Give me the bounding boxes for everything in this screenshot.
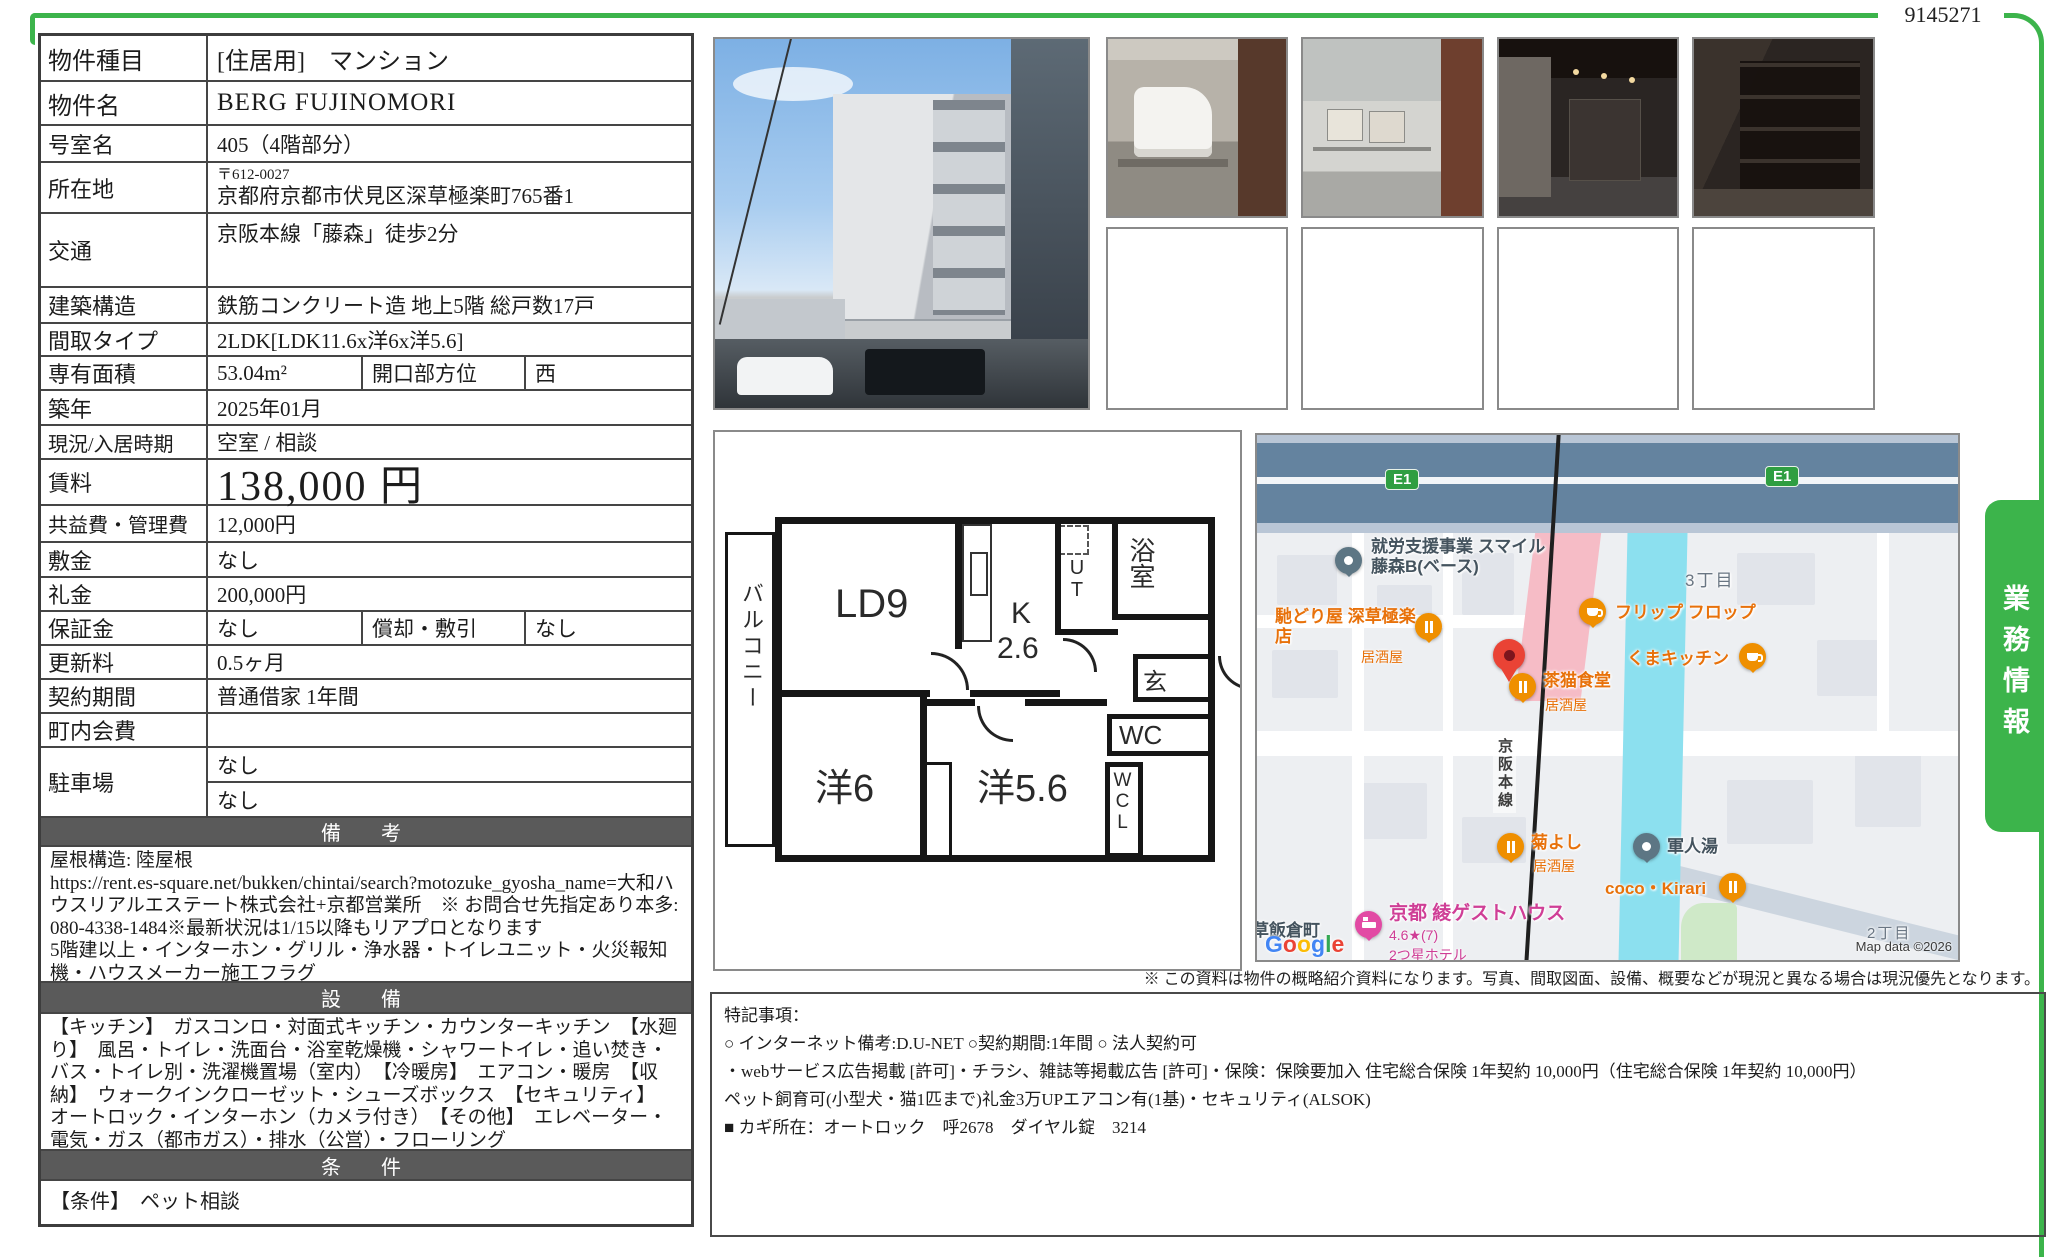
table-row-neighborhood: 町内会費 xyxy=(41,714,691,748)
flipflop-label[interactable]: フリップ フロップ xyxy=(1615,603,1756,623)
kitchen-size-label: 2.6 xyxy=(997,632,1039,666)
field-value: 鉄筋コンクリート造 地上5階 総戸数17戸 xyxy=(208,288,691,322)
table-row-keymoney: 礼金 200,000円 xyxy=(41,578,691,612)
map-building xyxy=(1817,640,1885,696)
field-value: 12,000円 xyxy=(208,506,691,541)
floor-edge xyxy=(1118,159,1228,167)
property-marker[interactable] xyxy=(1493,639,1525,671)
restaurant-icon xyxy=(1729,881,1732,893)
highway-edge xyxy=(1257,435,1960,443)
support-office-pin[interactable] xyxy=(1335,547,1362,574)
wall xyxy=(970,690,1060,697)
table-row-renewal: 更新料 0.5ヶ月 xyxy=(41,646,691,680)
parking-value-2: なし xyxy=(208,783,691,816)
railway-label: 京阪本線 xyxy=(1493,735,1516,813)
photo-mailboxes xyxy=(1692,37,1875,218)
guesthouse-label[interactable]: 京都 綾ゲストハウス xyxy=(1389,903,1565,926)
closet xyxy=(962,524,992,642)
field-label: 建築構造 xyxy=(41,288,208,322)
disclaimer-note: ※ この資料は物件の概略紹介資料になります。写真、間取図面、設備、概要などが現況… xyxy=(700,965,2040,989)
chaneko-label[interactable]: 茶猫食堂 xyxy=(1543,671,1611,691)
frame-corner xyxy=(2004,13,2044,65)
field-label: 所在地 xyxy=(41,163,208,212)
field-label-direction: 開口部方位 xyxy=(363,357,526,389)
table-row-deposit: 敷金 なし xyxy=(41,543,691,578)
route-shield-e1: E1 xyxy=(1765,466,1799,487)
ac-unit xyxy=(1369,111,1405,143)
field-label: 物件名 xyxy=(41,82,208,124)
closet-between-rooms xyxy=(920,762,952,858)
field-value: なし xyxy=(208,543,691,576)
kuma-kitchen-label[interactable]: くまキッチン xyxy=(1627,649,1729,669)
living-label: LD9 xyxy=(835,582,908,627)
building-dark-side xyxy=(1011,39,1090,339)
field-label: 物件種目 xyxy=(41,36,208,80)
field-label: 共益費・管理費 xyxy=(41,506,208,541)
bedroom1-label: 洋6 xyxy=(815,757,874,812)
field-value: 普通借家 1年間 xyxy=(208,680,691,712)
field-value: 2025年01月 xyxy=(208,391,691,424)
field-label: 専有面積 xyxy=(41,357,208,389)
table-row-contract: 契約期間 普通借家 1年間 xyxy=(41,680,691,714)
field-label: 更新料 xyxy=(41,646,208,678)
gunjinyu-pin[interactable] xyxy=(1633,833,1660,860)
location-map[interactable]: E1 E1 京阪本線 就労支援事業 スマイル 藤森B(ベース) 馳どり屋 深草極… xyxy=(1255,433,1960,962)
wall xyxy=(955,524,962,649)
wcl-label: WCL xyxy=(1111,770,1133,833)
restaurant-icon xyxy=(1507,841,1510,853)
parking-value-1: なし xyxy=(208,748,691,783)
kitchen-label: K xyxy=(1011,597,1031,631)
table-row-guarantee: 保証金 なし 償却・敷引 なし xyxy=(41,612,691,646)
conditions-text: 【条件】 ペット相談 xyxy=(41,1181,691,1224)
map-road xyxy=(1877,531,1889,743)
photo-placeholder-1 xyxy=(1106,227,1288,410)
field-label: 町内会費 xyxy=(41,714,208,746)
field-label: 敷金 xyxy=(41,543,208,576)
route-shield-e1: E1 xyxy=(1385,469,1419,490)
brick-wall xyxy=(1238,39,1288,218)
photo-placeholder-4 xyxy=(1692,227,1875,410)
business-info-tab[interactable]: 業務情報 xyxy=(1985,500,2044,832)
table-row-room: 号室名 405（4階部分） xyxy=(41,126,691,163)
photo-bicycle-parking xyxy=(1106,37,1288,218)
table-row-type: 物件種目 [住居用] マンション xyxy=(41,36,691,82)
guesthouse-type: 2つ星ホテル xyxy=(1389,945,1467,962)
property-sheet: 9145271 業務情報 物件種目 [住居用] マンション 物件名 BERG F… xyxy=(0,0,2056,1257)
building-exterior xyxy=(833,94,1011,319)
postal-code: 〒612-0027 xyxy=(217,167,290,184)
field-label: 契約期間 xyxy=(41,680,208,712)
field-value: 200,000円 xyxy=(208,578,691,610)
frame-left-stub xyxy=(30,13,35,45)
remarks-text: 屋根構造: 陸屋根 https://rent.es-square.net/buk… xyxy=(41,847,691,983)
wall xyxy=(1112,614,1215,620)
support-office-label[interactable]: 就労支援事業 スマイル 藤森B(ベース) xyxy=(1371,537,1611,578)
map-building xyxy=(1855,753,1921,827)
wc-label: WC xyxy=(1119,720,1162,751)
table-row-built: 築年 2025年01月 xyxy=(41,391,691,426)
guesthouse-pin[interactable] xyxy=(1355,911,1382,938)
field-value: 405（4階部分） xyxy=(208,126,691,161)
kikuyoshi-label[interactable]: 菊よし xyxy=(1531,833,1582,853)
field-label: 号室名 xyxy=(41,126,208,161)
field-value xyxy=(208,714,691,746)
parked-car xyxy=(737,357,833,395)
utility-label: UT xyxy=(1065,557,1088,601)
cafe-icon xyxy=(1747,653,1758,661)
field-value: 京阪本線「藤森」徒歩2分 xyxy=(208,214,691,286)
field-label: 築年 xyxy=(41,391,208,424)
hotel-icon xyxy=(1362,922,1376,928)
field-label-amortization: 償却・敷引 xyxy=(363,612,526,644)
table-row-address: 所在地 〒612-0027 京都府京都市伏見区深草極楽町765番1 xyxy=(41,163,691,214)
chaneko-type: 居酒屋 xyxy=(1545,695,1587,715)
table-row-rent: 賃料 138,000 円 xyxy=(41,460,691,506)
equipment-header: 設 備 xyxy=(41,983,691,1014)
field-label: 保証金 xyxy=(41,612,208,644)
hashidoriya-type: 居酒屋 xyxy=(1361,647,1403,667)
field-value: BERG FUJINOMORI xyxy=(208,82,691,124)
field-label: 駐車場 xyxy=(41,748,208,816)
map-greenery xyxy=(1681,903,1737,962)
coco-kirari-pin[interactable] xyxy=(1719,873,1746,900)
ceiling-lights xyxy=(1573,69,1579,75)
table-row-area: 専有面積 53.04m² 開口部方位 西 xyxy=(41,357,691,391)
table-row-layout: 間取タイプ 2LDK[LDK11.6x洋6x洋5.6] xyxy=(41,324,691,357)
kikuyoshi-pin[interactable] xyxy=(1497,833,1524,860)
wall xyxy=(1025,699,1107,706)
equipment-text: 【キッチン】 ガスコンロ・対面式キッチン・カウンターキッチン 【水廻り】 風呂・… xyxy=(41,1014,691,1151)
field-label: 礼金 xyxy=(41,578,208,610)
conditions-header: 条 件 xyxy=(41,1151,691,1181)
kuma-kitchen-pin[interactable] xyxy=(1739,643,1766,670)
bike-rack-rail xyxy=(1313,147,1431,151)
map-copyright: Map data ©2026 xyxy=(1856,939,1952,954)
coco-kirari-label[interactable]: coco・Kirari xyxy=(1605,879,1706,899)
ac-unit xyxy=(1327,109,1363,141)
field-value: [住居用] マンション xyxy=(208,36,691,80)
closet-inner xyxy=(970,552,988,596)
field-value: なし xyxy=(208,612,363,644)
field-value: 2LDK[LDK11.6x洋6x洋5.6] xyxy=(208,324,691,355)
photo-corridor xyxy=(1301,37,1484,218)
mailbox-grid xyxy=(1740,61,1860,191)
field-label: 交通 xyxy=(41,214,208,286)
lobby-wall xyxy=(1499,57,1551,197)
marker-dot-icon xyxy=(1504,650,1515,661)
floorplan: バルコニー LD9 K 2.6 UT 浴室 玄 WC WCL xyxy=(713,430,1242,971)
wall xyxy=(1055,629,1118,635)
kikuyoshi-type: 居酒屋 xyxy=(1533,856,1575,876)
field-value: 京都府京都市伏見区深草極楽町765番1 xyxy=(217,184,574,209)
floor xyxy=(1694,189,1875,218)
property-table: 物件種目 [住居用] マンション 物件名 BERG FUJINOMORI 号室名… xyxy=(38,33,694,1227)
google-logo: Google xyxy=(1265,931,1344,958)
frame-top-line xyxy=(30,13,1878,18)
field-label: 賃料 xyxy=(41,460,208,504)
entrance-label: 玄 xyxy=(1143,662,1167,697)
district-3chome-label: 3丁目 xyxy=(1685,571,1734,591)
entrance-door xyxy=(1569,99,1641,181)
special-notes: 特記事項： ○ インターネット備考:D.U-NET ○契約期間:1年間 ○ 法人… xyxy=(710,992,2046,1237)
highway-median xyxy=(1257,477,1960,484)
hashidoriya-pin[interactable] xyxy=(1415,613,1442,640)
bedroom2-label: 洋5.6 xyxy=(977,757,1068,812)
document-number: 9145271 xyxy=(1882,2,2004,28)
building-balconies xyxy=(933,100,1005,315)
photo-placeholder-3 xyxy=(1497,227,1679,410)
brick-column xyxy=(1441,39,1484,218)
table-row-parking: 駐車場 なし なし xyxy=(41,748,691,818)
map-building xyxy=(1727,780,1813,844)
table-row-fees: 共益費・管理費 12,000円 xyxy=(41,506,691,543)
gunjinyu-label[interactable]: 軍人湯 xyxy=(1667,837,1718,857)
hashidoriya-label[interactable]: 馳どり屋 深草極楽店 xyxy=(1275,607,1425,648)
cafe-icon xyxy=(1587,608,1598,616)
restaurant-icon xyxy=(1425,621,1428,633)
field-value: 0.5ヶ月 xyxy=(208,646,691,678)
photo-placeholder-2 xyxy=(1301,227,1484,410)
photo-lobby xyxy=(1497,37,1679,218)
highway-edge xyxy=(1257,523,1960,533)
restaurant-icon xyxy=(1519,681,1522,693)
map-building xyxy=(1272,650,1338,698)
map-main-road xyxy=(1257,731,1960,756)
main-photo xyxy=(713,37,1090,410)
wall xyxy=(1055,517,1061,635)
pin-dot-icon xyxy=(1642,842,1651,851)
flipflop-pin[interactable] xyxy=(1579,598,1606,625)
table-row-structure: 建築構造 鉄筋コンクリート造 地上5階 総戸数17戸 xyxy=(41,288,691,324)
rent-value: 138,000 円 xyxy=(208,460,691,504)
balcony-label: バルコニー xyxy=(735,582,767,712)
dark-vehicle xyxy=(865,349,985,395)
guesthouse-rating: 4.6★(7) xyxy=(1389,927,1438,944)
pin-dot-icon xyxy=(1344,556,1353,565)
map-building xyxy=(1353,783,1427,839)
wall xyxy=(1112,517,1118,617)
wall xyxy=(775,690,930,697)
field-value-amortization: なし xyxy=(526,612,691,644)
field-value: 53.04m² xyxy=(208,357,363,389)
map-building xyxy=(1277,555,1337,605)
table-row-name: 物件名 BERG FUJINOMORI xyxy=(41,82,691,126)
covered-bike xyxy=(1134,87,1212,157)
remarks-header: 備 考 xyxy=(41,818,691,847)
field-value-direction: 西 xyxy=(526,357,691,389)
bath-label: 浴室 xyxy=(1123,537,1160,589)
map-building xyxy=(1737,553,1815,605)
table-row-access: 交通 京阪本線「藤森」徒歩2分 xyxy=(41,214,691,288)
field-label: 現況/入居時期 xyxy=(41,426,208,458)
washer-space xyxy=(1059,525,1089,555)
entry-door-arc xyxy=(1218,656,1242,690)
wall xyxy=(927,699,975,706)
field-label: 間取タイプ xyxy=(41,324,208,355)
